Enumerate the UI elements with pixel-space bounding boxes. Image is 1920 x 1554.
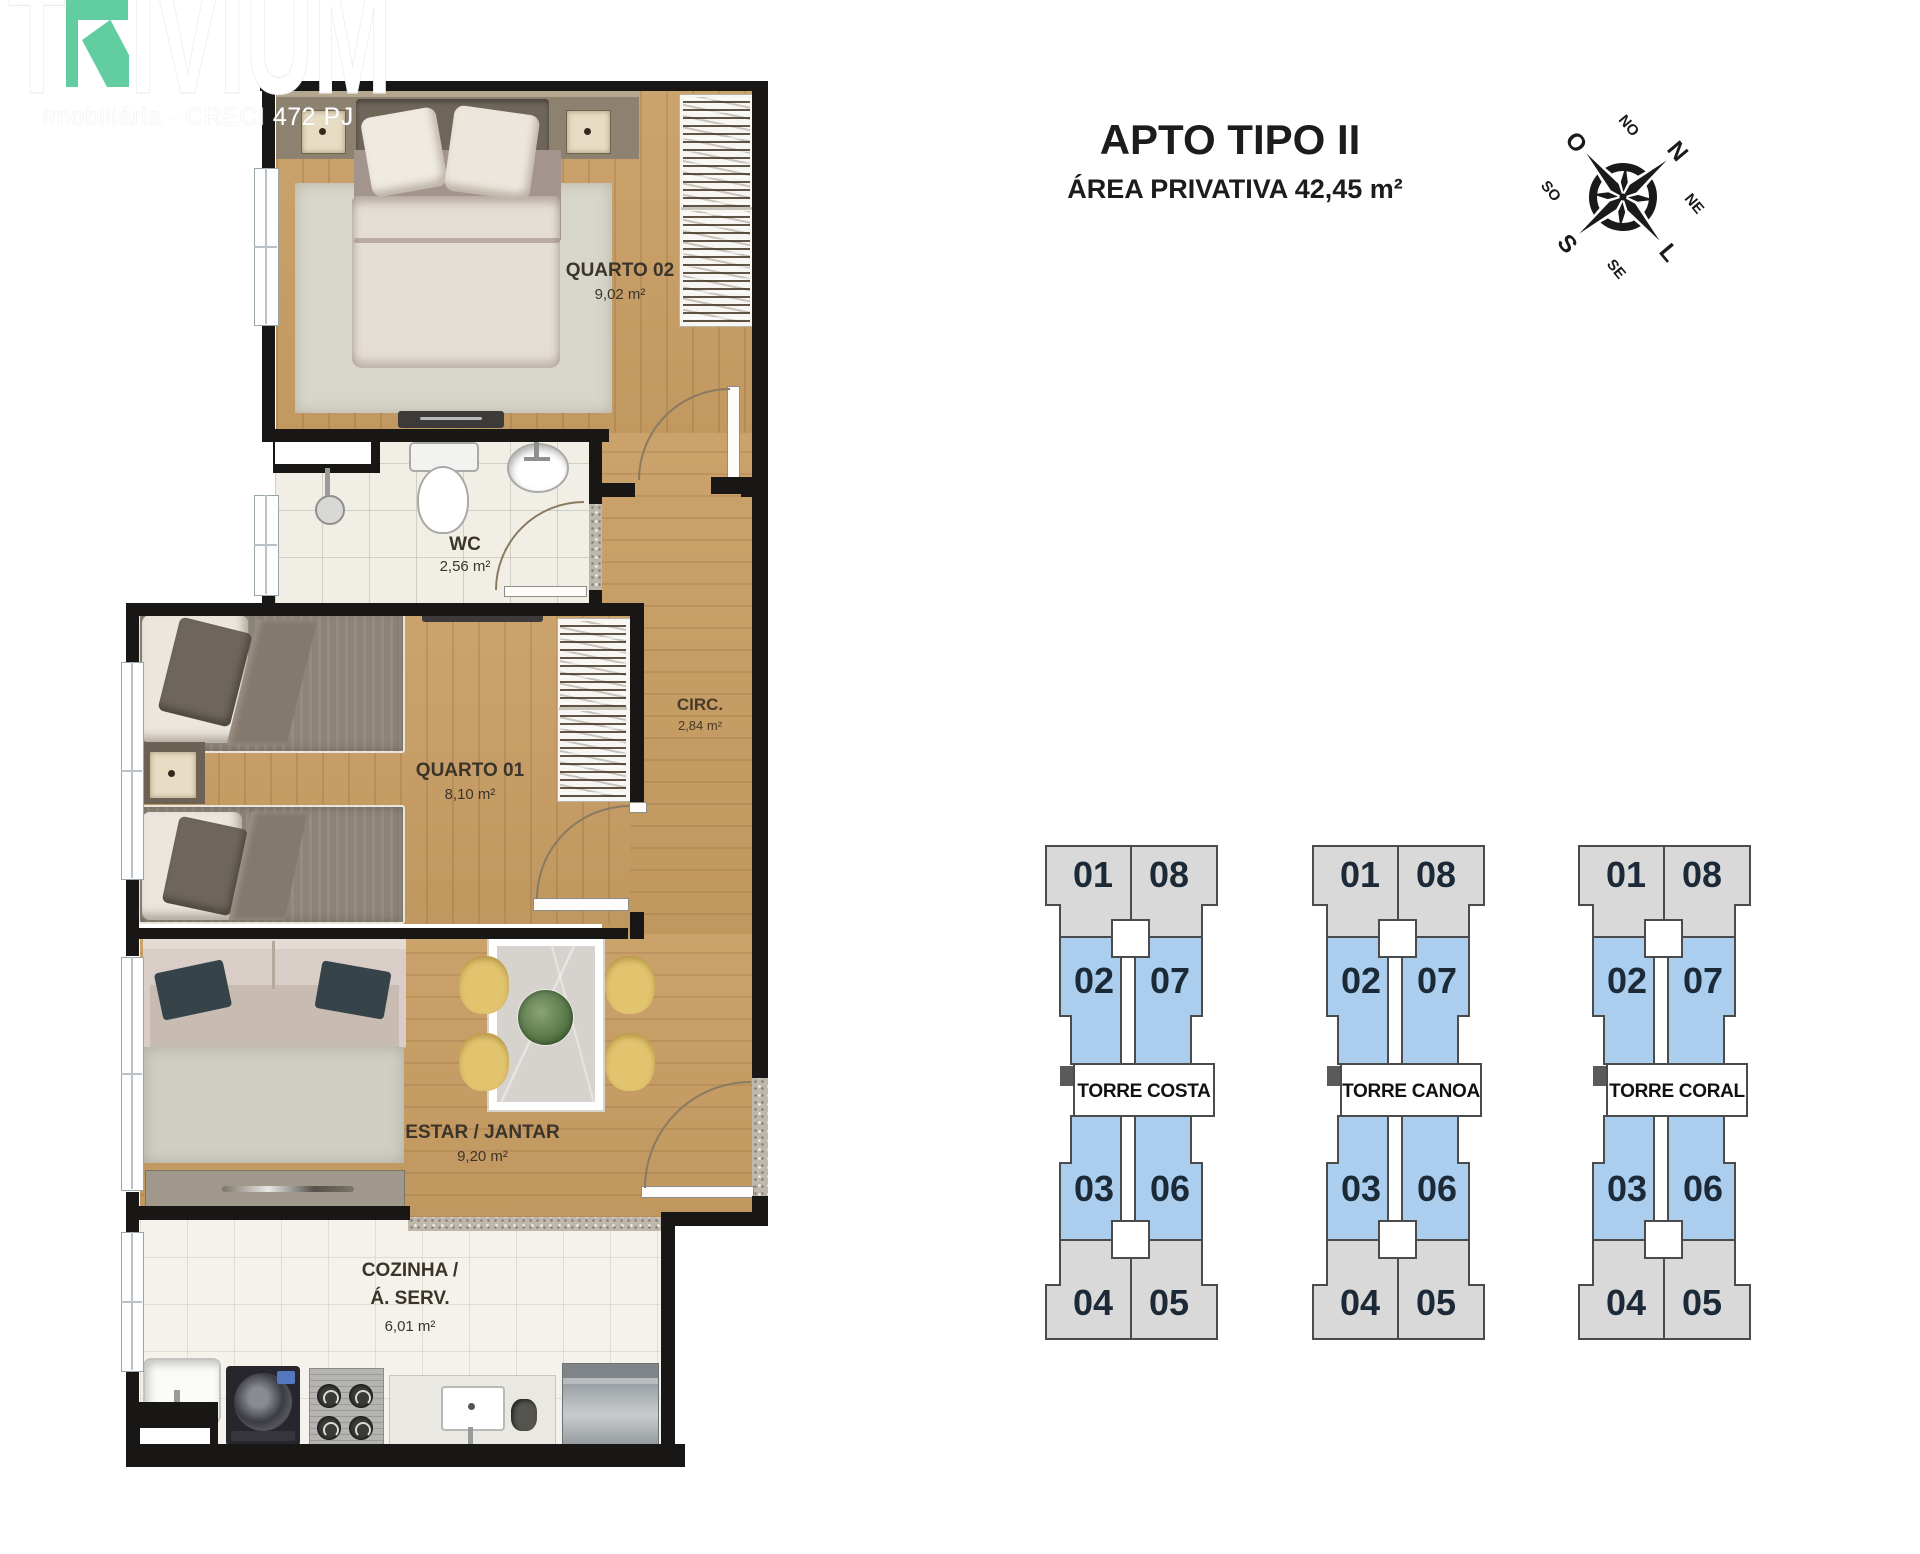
- svg-text:01: 01: [1340, 854, 1380, 895]
- svg-text:08: 08: [1416, 854, 1456, 895]
- svg-text:05: 05: [1149, 1282, 1189, 1323]
- svg-text:03: 03: [1341, 1168, 1381, 1209]
- svg-text:07: 07: [1150, 960, 1190, 1001]
- svg-text:04: 04: [1073, 1282, 1113, 1323]
- svg-text:05: 05: [1416, 1282, 1456, 1323]
- svg-text:07: 07: [1417, 960, 1457, 1001]
- svg-text:SO: SO: [1537, 178, 1564, 206]
- svg-text:L: L: [1653, 239, 1683, 268]
- svg-text:NE: NE: [1681, 190, 1707, 217]
- svg-text:01: 01: [1073, 854, 1113, 895]
- svg-text:08: 08: [1149, 854, 1189, 895]
- svg-text:TORRE CANOA: TORRE CANOA: [1342, 1081, 1480, 1102]
- svg-text:05: 05: [1682, 1282, 1722, 1323]
- svg-text:07: 07: [1683, 960, 1723, 1001]
- svg-text:06: 06: [1150, 1168, 1190, 1209]
- svg-text:03: 03: [1607, 1168, 1647, 1209]
- svg-text:SE: SE: [1603, 256, 1629, 282]
- svg-text:03: 03: [1074, 1168, 1114, 1209]
- svg-text:06: 06: [1417, 1168, 1457, 1209]
- svg-text:08: 08: [1682, 854, 1722, 895]
- svg-text:TORRE COSTA: TORRE COSTA: [1077, 1081, 1211, 1102]
- svg-text:04: 04: [1340, 1282, 1380, 1323]
- svg-text:NO: NO: [1615, 112, 1643, 140]
- svg-text:02: 02: [1607, 960, 1647, 1001]
- svg-text:TORRE CORAL: TORRE CORAL: [1609, 1081, 1745, 1102]
- svg-text:S: S: [1551, 229, 1582, 259]
- svg-text:06: 06: [1683, 1168, 1723, 1209]
- svg-text:N: N: [1661, 136, 1693, 167]
- svg-text:04: 04: [1606, 1282, 1646, 1323]
- svg-text:01: 01: [1606, 854, 1646, 895]
- svg-text:02: 02: [1074, 960, 1114, 1001]
- svg-text:02: 02: [1341, 960, 1381, 1001]
